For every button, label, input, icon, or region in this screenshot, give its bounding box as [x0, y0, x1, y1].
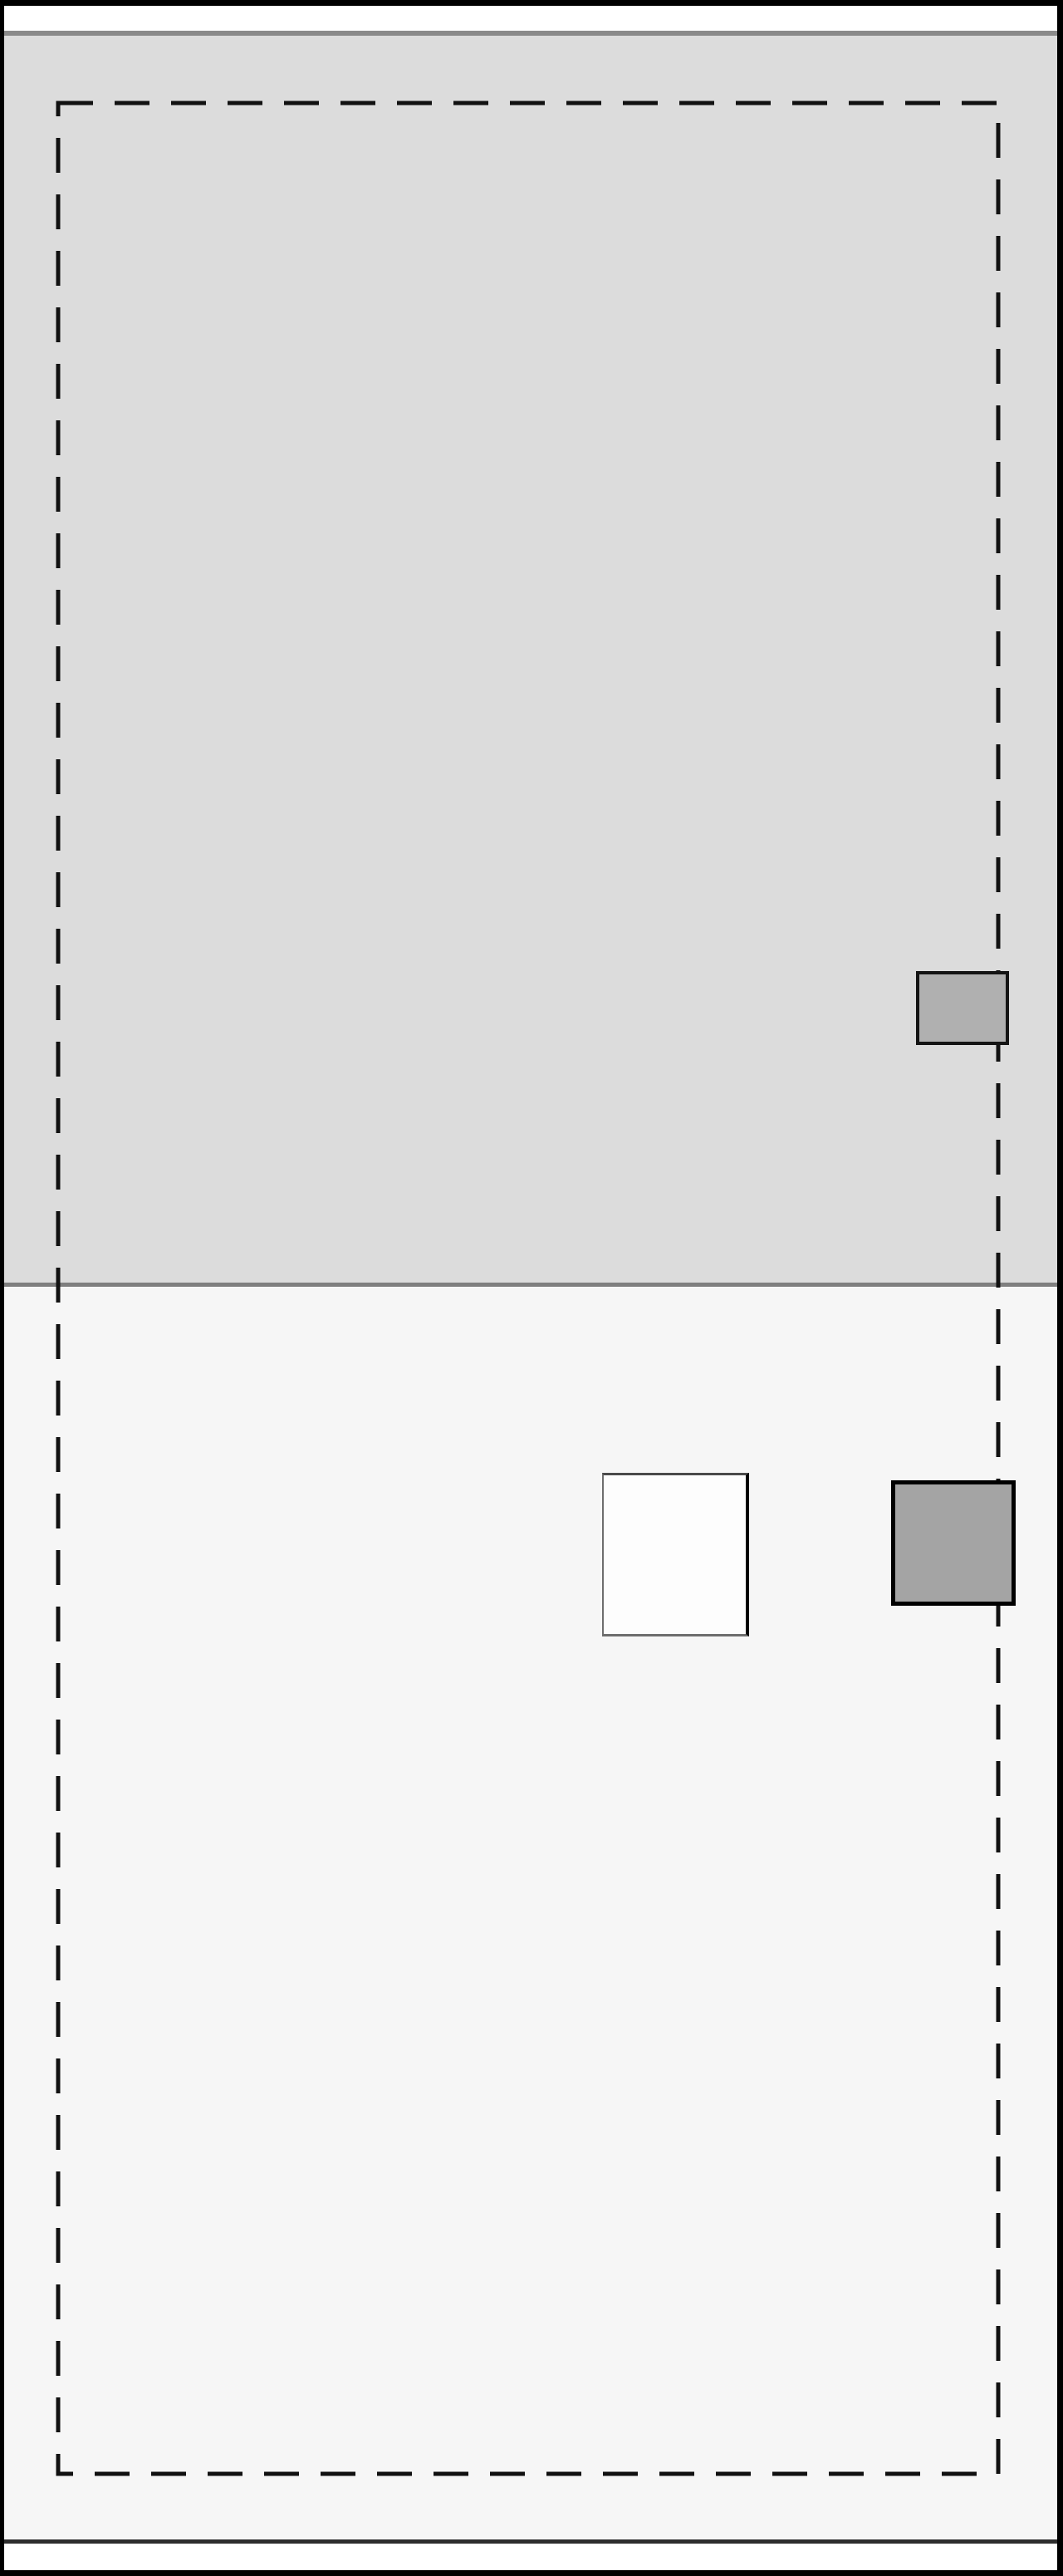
resize-handle-large[interactable] [891, 1480, 1016, 1606]
widget-placeholder-box[interactable] [602, 1473, 749, 1636]
status-bar [4, 2544, 1057, 2570]
upper-canvas-panel[interactable] [4, 36, 1057, 1283]
resize-handle-small[interactable] [916, 971, 1009, 1045]
app-window [0, 0, 1063, 2576]
title-bar [4, 6, 1057, 31]
lower-canvas-panel[interactable] [4, 1287, 1057, 2539]
